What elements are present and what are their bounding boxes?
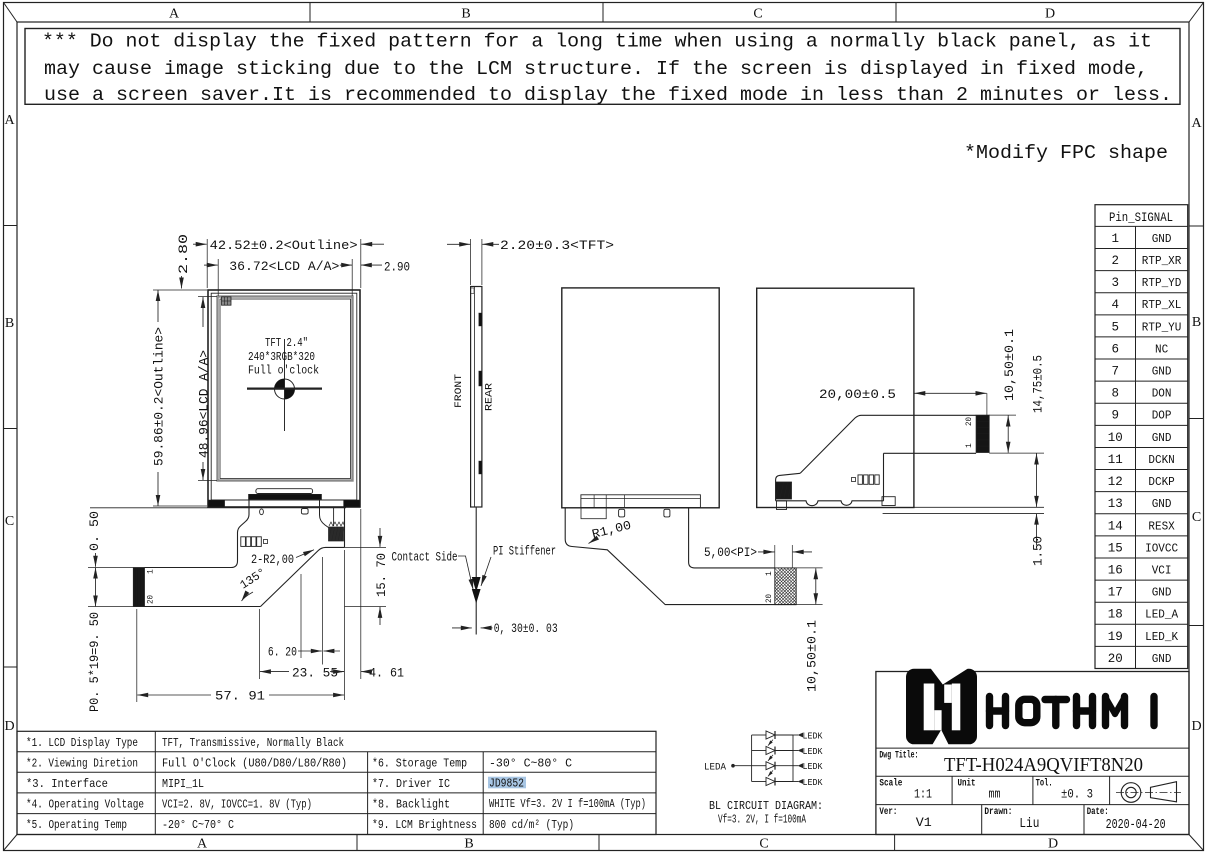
svg-text:*6. Storage Temp: *6. Storage Temp	[372, 757, 467, 771]
svg-text:A: A	[4, 113, 15, 128]
svg-text:2-R2,00: 2-R2,00	[251, 553, 294, 567]
svg-text:36.72<LCD A/A>: 36.72<LCD A/A>	[229, 259, 339, 274]
svg-text:1: 1	[147, 569, 156, 574]
svg-text:17: 17	[1108, 586, 1123, 600]
svg-text:LEDK: LEDK	[803, 732, 824, 742]
svg-text:D: D	[4, 719, 14, 734]
svg-text:1:1: 1:1	[914, 787, 932, 802]
svg-text:GND: GND	[1152, 366, 1172, 379]
svg-text:*3. Interface: *3. Interface	[26, 777, 108, 791]
svg-text:Liu: Liu	[1019, 817, 1039, 832]
svg-text:WHITE Vf=3. 2V I f=100mA (Typ): WHITE Vf=3. 2V I f=100mA (Typ)	[489, 797, 646, 811]
svg-text:RESX: RESX	[1148, 520, 1174, 533]
svg-text:57. 91: 57. 91	[215, 689, 265, 704]
svg-text:TFT, Transmissive, Normally Bl: TFT, Transmissive, Normally Black	[162, 736, 344, 750]
svg-text:2.20±0.3<TFT>: 2.20±0.3<TFT>	[500, 238, 614, 253]
svg-text:GND: GND	[1152, 498, 1172, 511]
svg-text:5: 5	[1111, 320, 1119, 334]
svg-text:*7. Driver IC: *7. Driver IC	[372, 777, 450, 791]
svg-text:V1: V1	[916, 815, 932, 830]
svg-text:Full o'clock: Full o'clock	[248, 364, 319, 378]
svg-text:7: 7	[1111, 365, 1119, 379]
svg-text:JD9852: JD9852	[489, 777, 524, 791]
svg-text:11: 11	[1108, 453, 1123, 467]
svg-text:8: 8	[1111, 387, 1119, 401]
svg-text:20: 20	[1108, 652, 1123, 666]
svg-text:240*3RGB*320: 240*3RGB*320	[248, 350, 315, 364]
svg-text:1: 1	[965, 443, 974, 448]
svg-text:BL CIRCUIT DIAGRAM:: BL CIRCUIT DIAGRAM:	[709, 800, 823, 813]
svg-text:-20° C~70° C: -20° C~70° C	[162, 818, 234, 832]
svg-text:20: 20	[147, 595, 156, 604]
svg-text:Date:: Date:	[1087, 807, 1109, 818]
svg-text:LEDA: LEDA	[704, 763, 726, 774]
svg-text:±0. 3: ±0. 3	[1061, 787, 1093, 802]
svg-text:*Modify FPC shape: *Modify FPC shape	[964, 142, 1168, 164]
svg-text:D: D	[1045, 7, 1055, 22]
svg-text:LED_A: LED_A	[1145, 609, 1178, 622]
svg-text:C: C	[1192, 510, 1201, 525]
svg-text:REAR: REAR	[484, 382, 496, 411]
svg-text:*** Do not display the fixed p: *** Do not display the fixed pattern for…	[42, 31, 1152, 53]
svg-text:15: 15	[1108, 541, 1123, 555]
svg-text:DCKP: DCKP	[1148, 476, 1174, 489]
svg-text:2: 2	[1111, 254, 1119, 268]
svg-text:VCI: VCI	[1152, 564, 1172, 577]
svg-text:2.80: 2.80	[176, 234, 191, 274]
svg-text:DOP: DOP	[1152, 410, 1172, 423]
svg-text:3: 3	[1111, 276, 1119, 290]
svg-text:use a screen saver.It is recom: use a screen saver.It is recommended to …	[44, 84, 1172, 106]
svg-text:0, 30±0. 03: 0, 30±0. 03	[494, 622, 558, 636]
svg-text:13: 13	[1108, 497, 1123, 511]
svg-text:48.96<LCD A/A>: 48.96<LCD A/A>	[197, 350, 212, 458]
svg-text:*1. LCD Display Type: *1. LCD Display Type	[26, 736, 138, 750]
svg-text:RTP_YD: RTP_YD	[1142, 277, 1182, 290]
svg-text:LED_K: LED_K	[1145, 631, 1178, 644]
svg-text:GND: GND	[1152, 432, 1172, 445]
svg-text:59.86±0.2<Outline>: 59.86±0.2<Outline>	[152, 327, 167, 466]
svg-text:A: A	[1191, 116, 1202, 131]
svg-text:18: 18	[1108, 608, 1123, 622]
svg-text:NC: NC	[1155, 343, 1168, 356]
svg-text:P0. 5*19=9. 50: P0. 5*19=9. 50	[88, 612, 102, 712]
svg-text:Dwg Title:: Dwg Title:	[879, 750, 918, 762]
svg-text:DCKN: DCKN	[1148, 454, 1174, 467]
svg-text:C: C	[753, 7, 762, 22]
svg-text:6. 20: 6. 20	[268, 645, 297, 660]
svg-text:9: 9	[1111, 409, 1119, 423]
svg-text:A: A	[169, 7, 180, 22]
svg-text:16: 16	[1108, 563, 1123, 577]
svg-text:10: 10	[1108, 431, 1123, 445]
svg-text:20: 20	[965, 417, 974, 426]
svg-text:Drawn:: Drawn:	[984, 807, 1012, 818]
svg-text:1: 1	[765, 571, 774, 576]
svg-text:800 cd/m² (Typ): 800 cd/m² (Typ)	[489, 818, 574, 832]
svg-text:B: B	[461, 7, 470, 22]
svg-text:-30° C~80° C: -30° C~80° C	[489, 757, 572, 771]
svg-text:4: 4	[1111, 298, 1119, 312]
svg-text:19: 19	[1108, 630, 1123, 644]
svg-text:14: 14	[1108, 519, 1123, 533]
svg-text:LEDK: LEDK	[803, 762, 824, 772]
svg-text:LEDK: LEDK	[803, 778, 824, 788]
svg-text:C: C	[5, 514, 14, 529]
svg-text:20: 20	[765, 594, 774, 603]
svg-text:B: B	[1192, 315, 1201, 330]
svg-text:Unit: Unit	[958, 778, 976, 790]
svg-text:1.50: 1.50	[1032, 536, 1046, 566]
svg-text:PI Stiffener: PI Stiffener	[493, 545, 556, 559]
svg-text:0. 50: 0. 50	[88, 511, 102, 551]
svg-text:10,50±0.1: 10,50±0.1	[806, 620, 820, 692]
svg-text:DON: DON	[1152, 388, 1172, 401]
svg-text:GND: GND	[1152, 653, 1172, 666]
svg-text:2.90: 2.90	[384, 260, 410, 275]
svg-text:B: B	[464, 837, 473, 852]
svg-text:GND: GND	[1152, 233, 1172, 246]
svg-text:Contact Side: Contact Side	[392, 551, 458, 565]
svg-text:*2. Viewing Diretion: *2. Viewing Diretion	[26, 757, 138, 771]
svg-text:23. 55: 23. 55	[292, 666, 338, 681]
svg-text:IOVCC: IOVCC	[1145, 542, 1178, 555]
svg-text:RTP_YU: RTP_YU	[1142, 321, 1182, 334]
svg-text:RTP_XR: RTP_XR	[1142, 255, 1182, 268]
svg-text:42.52±0.2<Outline>: 42.52±0.2<Outline>	[210, 238, 358, 253]
svg-text:TFT-H024A9QVIFT8N20: TFT-H024A9QVIFT8N20	[944, 754, 1143, 776]
svg-text:*9. LCM Brightness: *9. LCM Brightness	[372, 818, 477, 832]
svg-text:D: D	[1048, 837, 1058, 852]
svg-text:TFT 2.4": TFT 2.4"	[265, 336, 308, 350]
svg-text:mm: mm	[989, 787, 1001, 802]
svg-text:Full O'Clock (U80/D80/L80/R80): Full O'Clock (U80/D80/L80/R80)	[162, 757, 347, 771]
svg-text:may cause image sticking due t: may cause image sticking due to the LCM …	[44, 58, 1148, 80]
svg-text:FRONT: FRONT	[453, 374, 465, 408]
svg-text:*5. Operating Temp: *5. Operating Temp	[26, 818, 127, 832]
svg-text:C: C	[759, 837, 768, 852]
svg-text:Pin_SIGNAL: Pin_SIGNAL	[1109, 211, 1173, 225]
svg-text:*4. Operating Voltage: *4. Operating Voltage	[26, 798, 144, 812]
svg-text:B: B	[5, 316, 14, 331]
svg-text:GND: GND	[1152, 587, 1172, 600]
svg-text:14,75±0.5: 14,75±0.5	[1032, 355, 1046, 413]
svg-text:6: 6	[1111, 342, 1119, 356]
svg-text:A: A	[197, 837, 208, 852]
svg-text:*8. Backlight: *8. Backlight	[372, 798, 450, 812]
svg-text:4. 61: 4. 61	[369, 666, 404, 681]
svg-text:Vf=3. 2V, I f=100mA: Vf=3. 2V, I f=100mA	[718, 814, 806, 827]
svg-text:15. 70: 15. 70	[374, 553, 389, 597]
svg-text:Ver:: Ver:	[879, 807, 897, 818]
svg-text:MIPI_1L: MIPI_1L	[162, 777, 204, 791]
svg-text:Tol.: Tol.	[1036, 778, 1053, 790]
svg-text:2020-04-20: 2020-04-20	[1106, 818, 1166, 833]
svg-text:Scale: Scale	[879, 778, 902, 790]
svg-text:20,00±0.5: 20,00±0.5	[819, 387, 896, 402]
svg-text:RTP_XL: RTP_XL	[1142, 299, 1182, 312]
svg-text:10,50±0.1: 10,50±0.1	[1003, 329, 1017, 401]
svg-text:LEDK: LEDK	[803, 747, 824, 757]
svg-text:VCI=2. 8V, IOVCC=1. 8V (Typ): VCI=2. 8V, IOVCC=1. 8V (Typ)	[162, 798, 312, 812]
svg-text:12: 12	[1108, 475, 1123, 489]
svg-text:5,00<PI>: 5,00<PI>	[704, 546, 757, 560]
svg-text:D: D	[1191, 719, 1201, 734]
svg-text:1: 1	[1111, 232, 1119, 246]
